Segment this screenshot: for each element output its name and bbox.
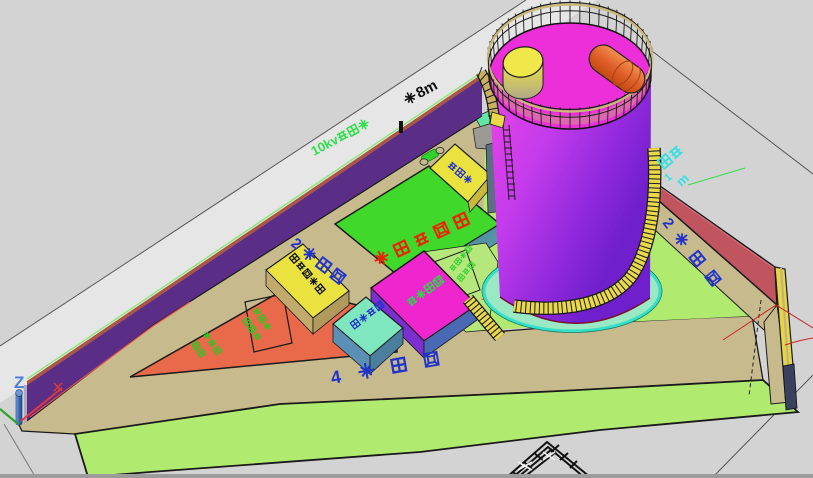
svg-text:Z: Z — [14, 373, 24, 392]
